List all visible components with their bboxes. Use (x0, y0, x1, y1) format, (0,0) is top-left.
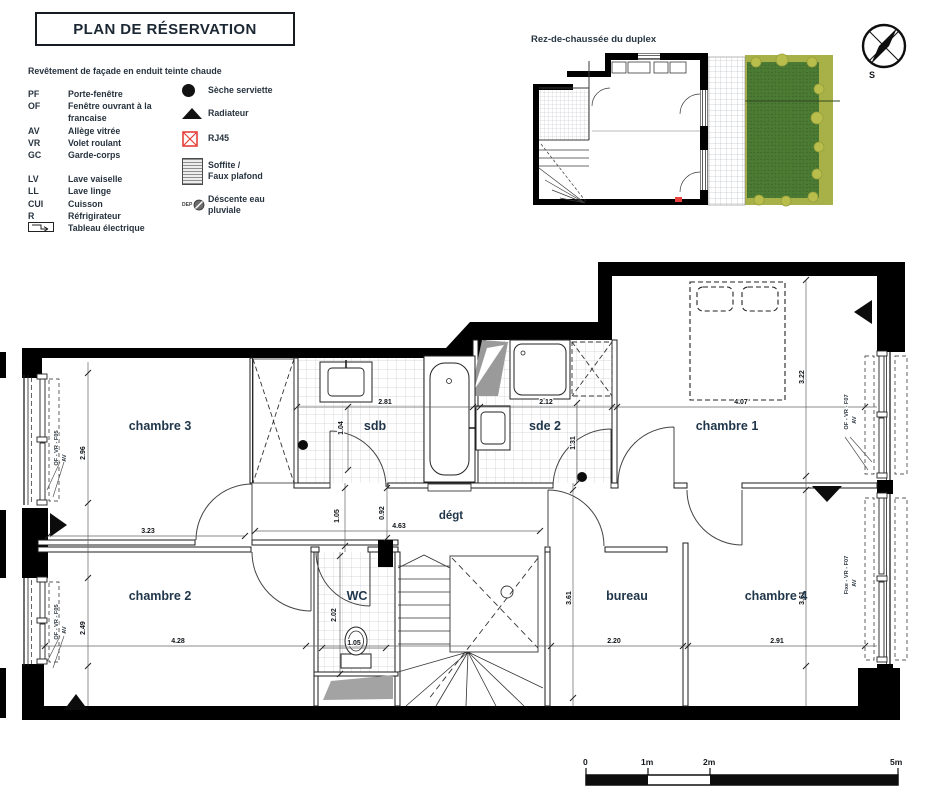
inset-ground-floor-plan: Rez-de-chaussée du duplex (531, 34, 840, 206)
dim-ch3-h: 2.96 (80, 446, 87, 460)
legend-abbreviations: PFPorte-fenêtre OFFenêtre ouvrant à la f… (28, 88, 166, 234)
room-label-ch4: chambre 4 (745, 589, 808, 603)
dim-ch2-w: 4.28 (171, 638, 185, 645)
inset-red-marker (675, 197, 682, 202)
soffite-icon (182, 158, 203, 185)
bathtub (424, 356, 475, 491)
towel-dryer-sdb-icon (298, 440, 308, 450)
room-label-sdb: sdb (364, 419, 387, 433)
legend-row: PFPorte-fenêtre (28, 88, 166, 100)
window-label-ch3: OF - VR - F05 (54, 430, 60, 465)
rainwater-downpipe-icon (193, 199, 205, 211)
legend-row-radiator: Radiateur (182, 108, 273, 120)
dim-wc-h: 2.02 (331, 608, 338, 622)
dim-degt-w: 4.63 (392, 523, 406, 530)
inset-interior (539, 61, 700, 203)
window-label-ch2-av: AV (62, 626, 68, 634)
legend-row: LVLave vaiselle (28, 173, 166, 185)
legend-row-electrical-panel: Tableau électrique (28, 222, 166, 234)
scale-bar: 0 1m 2m 5m (583, 757, 903, 785)
door-ch4 (687, 490, 742, 545)
room-label-bureau: bureau (606, 589, 648, 603)
window-label-ch1-av: AV (852, 416, 858, 424)
window-label-ch2: OF - VR - F05 (54, 604, 60, 639)
window-ch1 (865, 351, 907, 480)
legend-symbols: Sèche serviette Radiateur RJ45 Soffite /… (182, 84, 273, 228)
dim-degt-v1: 1.05 (334, 509, 341, 523)
legend-row: LLLave linge (28, 185, 166, 197)
dim-sde2-w: 2.12 (539, 399, 553, 406)
dim-degt-v2: 0.92 (379, 506, 386, 520)
legend-row-towel-dryer: Sèche serviette (182, 84, 273, 97)
legend-row: AVAllège vitrée (28, 125, 166, 137)
radiator-ch3-icon (50, 513, 67, 537)
room-label-ch1: chambre 1 (696, 419, 759, 433)
towel-dryer-icon (182, 84, 195, 97)
door-ch2 (252, 552, 311, 611)
staircase (398, 555, 543, 706)
door-bureau (548, 490, 604, 546)
room-label-ch3: chambre 3 (129, 419, 192, 433)
bed (690, 282, 785, 400)
room-label-wc: WC (347, 589, 368, 603)
plan-title: PLAN DE RÉSERVATION (73, 21, 256, 38)
main-plan: 2.81 2.12 4.07 3.23 4.63 4.28 1.05 2.20 … (0, 262, 907, 720)
compass-south-label: S (869, 70, 875, 80)
legend-row-descente: DEP Déscente eau pluviale (182, 194, 273, 217)
window-label-ch4-av: AV (852, 579, 858, 587)
inset-openings (638, 54, 708, 191)
room-label-degt: dégt (439, 510, 463, 522)
electrical-panel-icon (28, 222, 54, 232)
legend-row: OFFenêtre ouvrant à la francaise (28, 100, 166, 124)
sink-sdb (320, 360, 372, 402)
window-label-ch4: Fixe - VR - F07 (844, 556, 850, 595)
door-ch1 (618, 427, 674, 483)
dim-ch1-h: 3.22 (799, 370, 806, 384)
radiator-ch1-icon (854, 300, 872, 324)
compass: S (863, 25, 905, 80)
dim-sdb-w: 2.81 (378, 399, 392, 406)
legend-row: GCGarde-corps (28, 149, 166, 161)
legend-row-soffite: Soffite / Faux plafond (182, 158, 273, 185)
dim-sde2-v: 1.31 (570, 436, 577, 450)
radiator-icon (182, 108, 202, 119)
dim-bureau-h: 3.61 (566, 591, 573, 605)
dim-wc-w: 1.05 (347, 640, 361, 647)
plan-title-box: PLAN DE RÉSERVATION (35, 12, 295, 46)
garden (745, 54, 840, 206)
legend-row: CUICuisson (28, 198, 166, 210)
towel-dryer-sde2-icon (577, 472, 587, 482)
legend-row: VRVolet roulant (28, 137, 166, 149)
window-ch4 (865, 493, 907, 664)
rj45-icon (182, 131, 198, 147)
room-label-sde2: sde 2 (529, 419, 561, 433)
dim-ch1-w: 4.07 (734, 399, 748, 406)
legend-row-rj45: RJ45 (182, 131, 273, 147)
scale-5m: 5m (890, 757, 903, 767)
compass-needle (871, 28, 897, 64)
dim-ch4-w: 2.91 (770, 638, 784, 645)
window-label-ch3-av: AV (62, 454, 68, 462)
scale-0: 0 (583, 757, 588, 767)
inset-title: Rez-de-chaussée du duplex (531, 34, 657, 45)
dim-ch3-w: 3.23 (141, 528, 155, 535)
legend-row: RRéfrigirateur (28, 210, 166, 222)
soffite-shade-wc (323, 675, 393, 700)
dim-bureau-w: 2.20 (607, 638, 621, 645)
radiator-ch2-icon (64, 694, 88, 710)
scale-1m: 1m (641, 757, 654, 767)
dim-sdb-v: 1.04 (338, 421, 345, 435)
shower (510, 340, 570, 399)
scale-2m: 2m (703, 757, 716, 767)
duct-block (378, 540, 393, 567)
room-label-ch2: chambre 2 (129, 589, 192, 603)
door-ch3 (196, 484, 252, 540)
window-label-ch1: OF - VR - F07 (844, 394, 850, 429)
radiator-ch4-icon (812, 486, 842, 502)
dim-ch2-h: 2.49 (80, 621, 87, 635)
terrace (708, 57, 745, 205)
facade-note: Revêtement de façade en enduit teinte ch… (28, 66, 222, 76)
